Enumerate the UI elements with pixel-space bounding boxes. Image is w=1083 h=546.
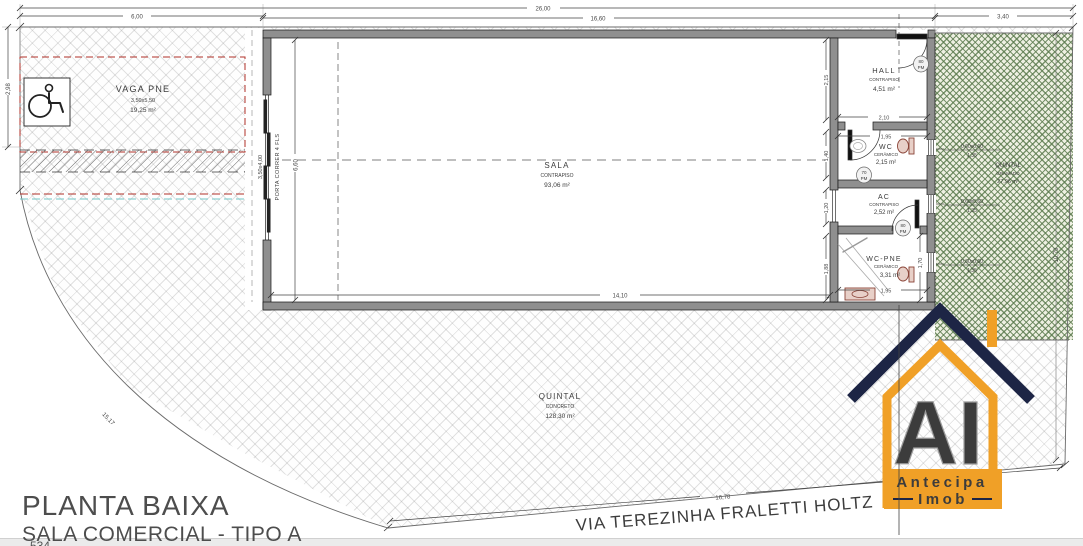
logo-name-line2: Imob bbox=[918, 491, 968, 508]
logo-layer: AI Antecipa Imob bbox=[0, 0, 1083, 546]
logo-chimney bbox=[987, 310, 997, 347]
floor-plan-canvas: 26,00 6,00 16,60 3,40 2,98 6,60 14,10 2,… bbox=[0, 0, 1083, 546]
title-block: PLANTA BAIXA SALA COMERCIAL - TIPO A bbox=[22, 492, 302, 546]
footer-partial-text: 534 bbox=[30, 539, 50, 546]
logo-name-line1: Antecipa bbox=[896, 474, 987, 491]
antecipa-imob-logo: AI Antecipa Imob bbox=[851, 310, 1031, 509]
page-title: PLANTA BAIXA bbox=[22, 492, 302, 520]
page-subtitle: SALA COMERCIAL - TIPO A bbox=[22, 523, 302, 546]
